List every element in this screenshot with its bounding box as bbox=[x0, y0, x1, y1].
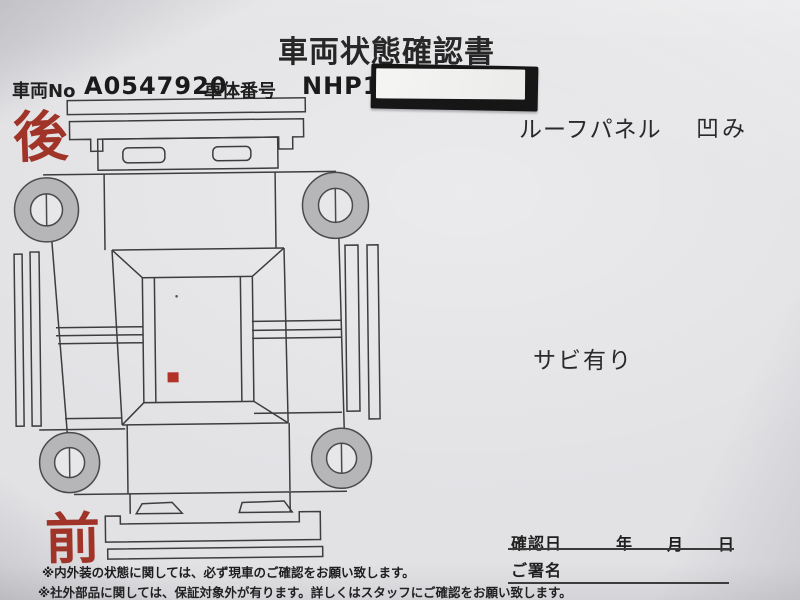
small-dot-mark bbox=[175, 295, 178, 298]
roof-cabin bbox=[112, 248, 288, 425]
footnote-interior-exterior: ※内外装の状態に関しては、必ず現車のご確認をお願い致します。 bbox=[42, 562, 415, 581]
redaction-white-sticker bbox=[376, 68, 525, 99]
rear-deck-pillars bbox=[104, 172, 276, 250]
hood-front bbox=[73, 422, 348, 559]
rust-note: サビ有り bbox=[533, 341, 633, 375]
vehicle-no-label: 車両No bbox=[12, 77, 75, 103]
rear-fender-line bbox=[43, 171, 336, 175]
confirm-date-label: 確認日 bbox=[511, 530, 562, 554]
redaction-black-box bbox=[371, 63, 539, 111]
damage-marker-roof bbox=[168, 372, 179, 382]
body-number-label: 車体番号 bbox=[204, 77, 276, 103]
rear-hatch bbox=[98, 137, 278, 170]
side-sill-bars bbox=[14, 245, 380, 426]
vehicle-condition-sheet-photo: 車両状態確認書 車両No A0547920 車体番号 NHP10 後 前 ルーフ… bbox=[0, 0, 800, 600]
confirm-date-underline bbox=[508, 548, 734, 550]
rear-bumper bbox=[67, 98, 306, 152]
signature-label: ご署名 bbox=[511, 557, 562, 581]
body-side-edges bbox=[37, 238, 344, 433]
year-label: 年 bbox=[616, 530, 633, 554]
rear-direction-label: 後 bbox=[12, 109, 69, 166]
day-label: 日 bbox=[718, 531, 735, 555]
month-label: 月 bbox=[667, 531, 684, 555]
footnote-aftermarket-parts: ※社外部品に関しては、保証対象外が有ります。詳しくはスタッフにご確認をお願い致し… bbox=[38, 582, 572, 600]
wheels bbox=[14, 172, 372, 493]
door-gap-lines bbox=[56, 320, 342, 418]
roof-panel-label: ルーフパネル bbox=[519, 110, 662, 144]
front-direction-label: 前 bbox=[45, 512, 101, 568]
roof-panel-condition: 凹み bbox=[696, 109, 748, 143]
